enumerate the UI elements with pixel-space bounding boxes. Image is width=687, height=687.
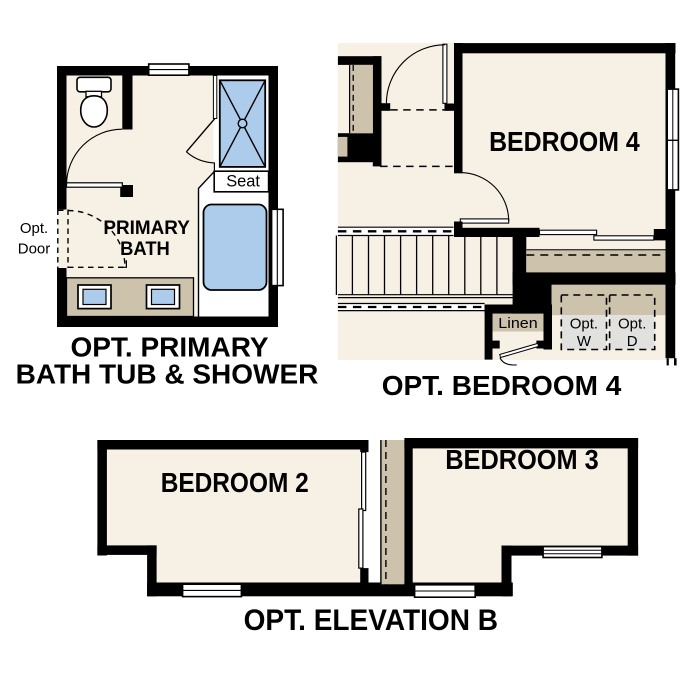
- svg-text:D: D: [627, 333, 638, 350]
- svg-text:BATH TUB & SHOWER: BATH TUB & SHOWER: [16, 358, 319, 389]
- svg-text:OPT. BEDROOM 4: OPT. BEDROOM 4: [382, 370, 622, 401]
- svg-text:Opt.: Opt.: [570, 316, 598, 333]
- svg-text:BEDROOM 4: BEDROOM 4: [489, 126, 640, 157]
- svg-text:BEDROOM 2: BEDROOM 2: [161, 467, 309, 498]
- svg-text:BEDROOM 3: BEDROOM 3: [445, 444, 599, 475]
- svg-text:Linen: Linen: [498, 315, 537, 332]
- svg-text:Opt.: Opt.: [618, 316, 646, 333]
- svg-text:OPT. ELEVATION B: OPT. ELEVATION B: [244, 604, 498, 637]
- svg-text:PRIMARY: PRIMARY: [103, 217, 189, 239]
- svg-text:W: W: [577, 333, 592, 350]
- svg-text:BATH: BATH: [120, 238, 170, 260]
- svg-text:Door: Door: [18, 240, 51, 257]
- svg-text:Seat: Seat: [226, 173, 260, 191]
- svg-text:Opt.: Opt.: [20, 220, 48, 237]
